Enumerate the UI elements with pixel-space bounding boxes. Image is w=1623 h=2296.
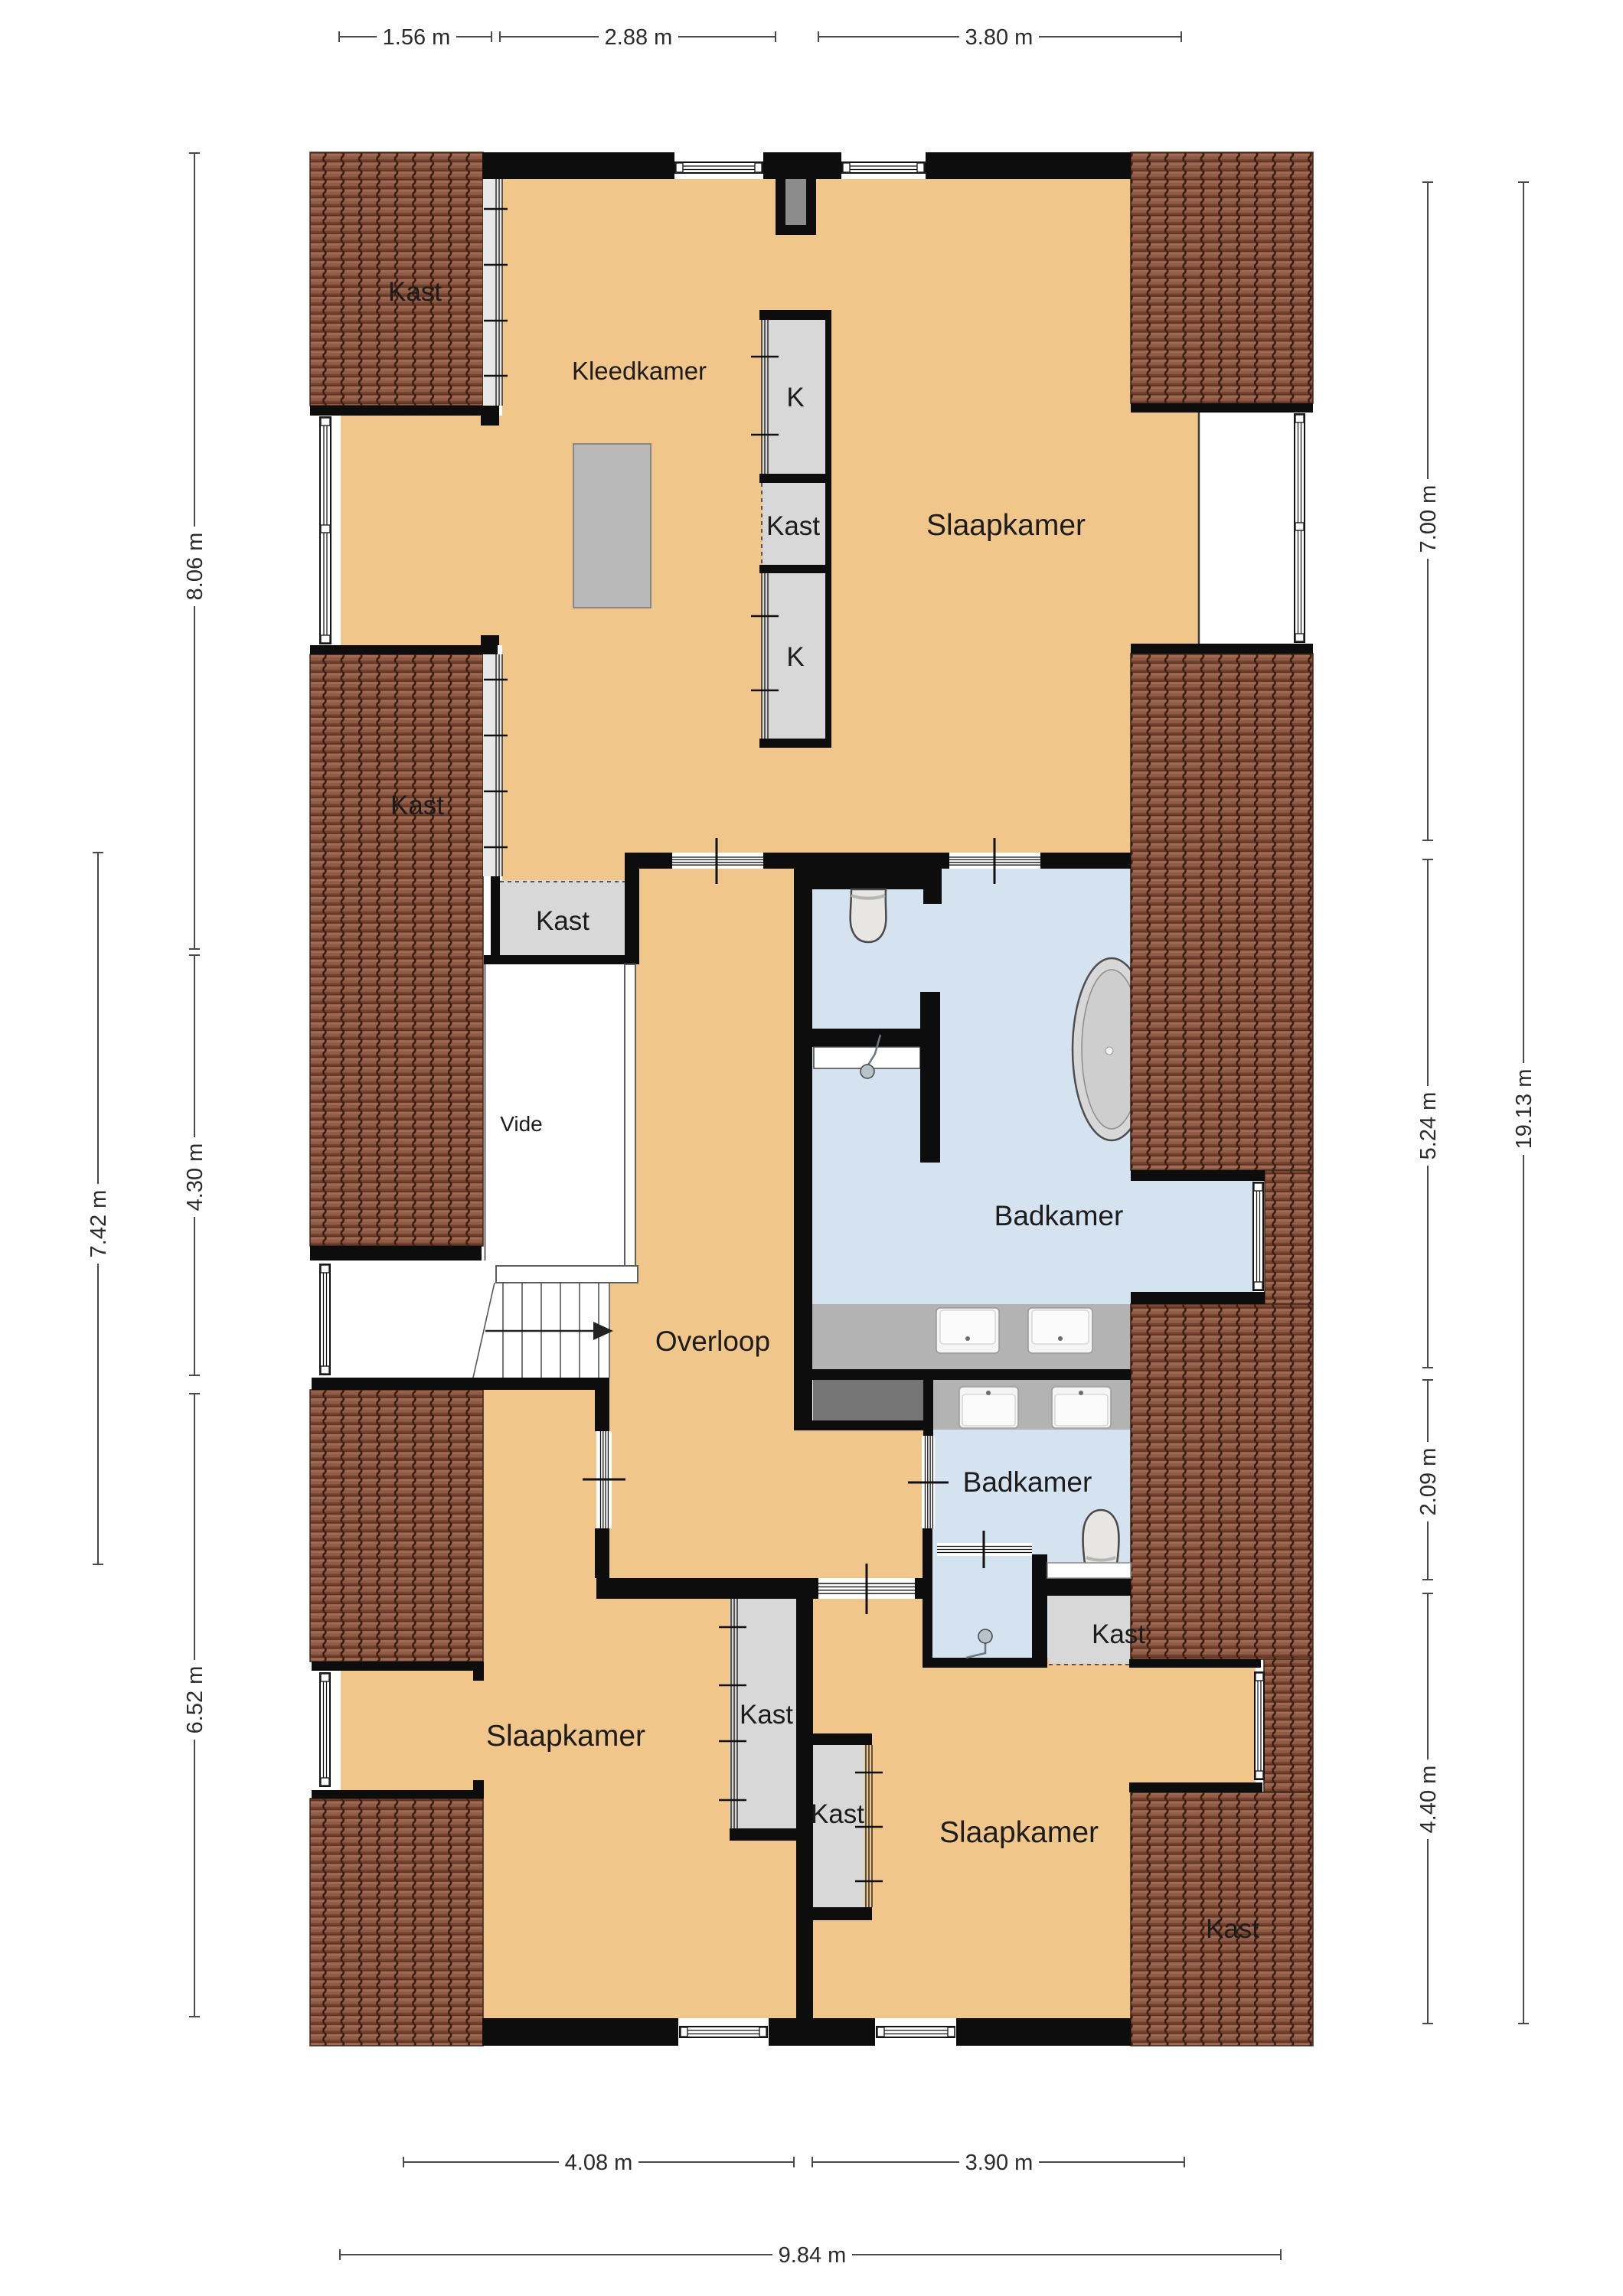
svg-text:4.30 m: 4.30 m xyxy=(183,1143,207,1212)
svg-text:2.88 m: 2.88 m xyxy=(605,25,673,50)
svg-text:Kast: Kast xyxy=(388,277,442,307)
svg-text:4.08 m: 4.08 m xyxy=(565,2151,633,2175)
svg-text:Kleedkamer: Kleedkamer xyxy=(572,357,707,385)
svg-text:Kast: Kast xyxy=(390,791,444,820)
svg-text:Kast: Kast xyxy=(766,511,820,541)
svg-text:Badkamer: Badkamer xyxy=(963,1466,1092,1498)
svg-text:19.13 m: 19.13 m xyxy=(1512,1069,1536,1150)
svg-text:Kast: Kast xyxy=(1092,1619,1145,1649)
svg-text:5.24 m: 5.24 m xyxy=(1416,1092,1441,1160)
svg-text:Slaapkamer: Slaapkamer xyxy=(926,509,1086,542)
svg-text:Slaapkamer: Slaapkamer xyxy=(486,1720,645,1753)
svg-text:7.00 m: 7.00 m xyxy=(1416,485,1441,553)
svg-text:1.56 m: 1.56 m xyxy=(383,25,451,50)
svg-text:Kast: Kast xyxy=(740,1700,793,1730)
svg-text:Vide: Vide xyxy=(500,1112,543,1136)
svg-text:6.52 m: 6.52 m xyxy=(183,1666,207,1734)
svg-text:3.90 m: 3.90 m xyxy=(965,2151,1034,2175)
svg-text:8.06 m: 8.06 m xyxy=(183,533,207,601)
svg-text:K: K xyxy=(786,642,804,672)
svg-text:3.80 m: 3.80 m xyxy=(965,25,1034,50)
svg-text:7.42 m: 7.42 m xyxy=(87,1190,111,1258)
svg-text:2.09 m: 2.09 m xyxy=(1416,1448,1441,1516)
svg-text:Kast: Kast xyxy=(1206,1914,1259,1944)
svg-text:Badkamer: Badkamer xyxy=(994,1200,1124,1231)
svg-text:Kast: Kast xyxy=(811,1799,864,1829)
svg-text:Kast: Kast xyxy=(536,906,589,936)
svg-text:Slaapkamer: Slaapkamer xyxy=(939,1816,1099,1849)
svg-text:K: K xyxy=(786,383,804,413)
svg-text:Overloop: Overloop xyxy=(655,1326,770,1357)
svg-text:9.84 m: 9.84 m xyxy=(779,2243,847,2268)
svg-text:4.40 m: 4.40 m xyxy=(1416,1766,1441,1834)
